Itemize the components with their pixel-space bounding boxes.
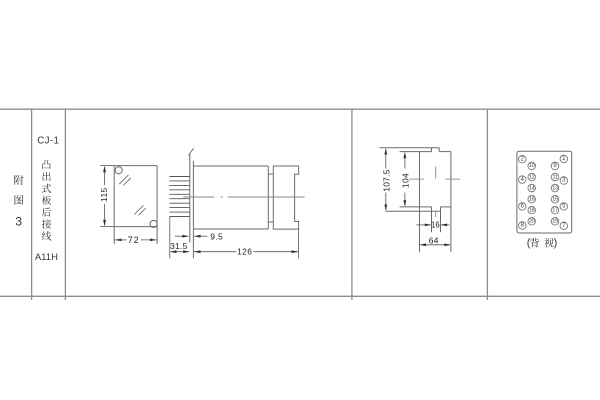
svg-text:31.5: 31.5 <box>170 241 188 251</box>
svg-text:16: 16 <box>431 221 440 230</box>
svg-text:12: 12 <box>529 174 535 180</box>
svg-text:72: 72 <box>128 235 140 245</box>
svg-text:13: 13 <box>552 185 558 191</box>
svg-text:11: 11 <box>552 174 557 180</box>
svg-text:18: 18 <box>529 207 535 213</box>
svg-text:126: 126 <box>237 247 252 257</box>
svg-text:): ) <box>554 237 558 249</box>
svg-text:A11H: A11H <box>35 252 58 262</box>
svg-text:16: 16 <box>529 196 535 202</box>
svg-text:19: 19 <box>552 219 558 225</box>
svg-text:17: 17 <box>552 207 558 213</box>
svg-text:64: 64 <box>429 236 439 246</box>
svg-text:3: 3 <box>15 214 22 228</box>
svg-text:(: ( <box>527 237 531 249</box>
svg-text:104: 104 <box>401 173 411 188</box>
svg-text:20: 20 <box>529 219 535 225</box>
svg-text:9.5: 9.5 <box>210 232 223 242</box>
svg-text:10: 10 <box>529 163 535 169</box>
svg-text:107.5: 107.5 <box>382 169 392 192</box>
svg-text:115: 115 <box>99 187 109 202</box>
svg-text:15: 15 <box>552 196 558 202</box>
svg-text:CJ-1: CJ-1 <box>37 136 59 147</box>
svg-text:14: 14 <box>529 185 535 191</box>
